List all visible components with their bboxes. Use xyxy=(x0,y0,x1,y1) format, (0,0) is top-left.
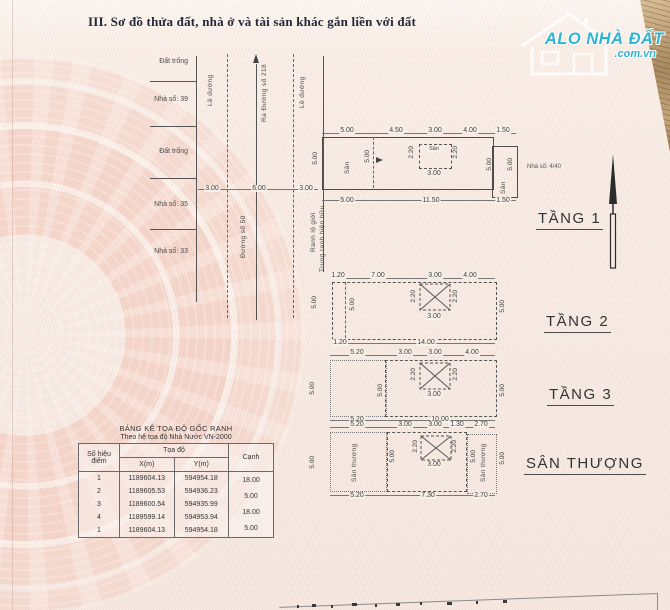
dim-label: 5.00 xyxy=(339,127,355,134)
dim-label: 2.20 xyxy=(452,368,459,381)
road-direction-arrow-icon xyxy=(253,54,259,63)
cutoff-text-fragment xyxy=(352,603,357,606)
boundary-tick xyxy=(150,229,196,230)
cutoff-text-fragment xyxy=(447,602,452,605)
house-number-label: Nhà số: 4/40 xyxy=(527,164,561,170)
coordinate-table: Số hiệu điểm Tọa độ Cạnh X(m) Y(m) 1 118… xyxy=(78,443,274,538)
dim-label: 5.00 xyxy=(339,197,355,204)
coord-y-cell: 594954.18 xyxy=(174,472,229,486)
brand-name: ALO NHÀ ĐẤT xyxy=(514,30,664,49)
dim-label: 5.00 xyxy=(309,456,316,469)
dim-label: 5.00 xyxy=(507,158,514,171)
entry-arrow-icon xyxy=(376,157,383,163)
edge-value: 18.00 xyxy=(229,477,273,484)
cutoff-text-fragment xyxy=(331,605,333,608)
dim-label: 5.00 xyxy=(377,384,384,397)
dim-label: 3.00 xyxy=(397,421,413,428)
dim-label: 5.00 xyxy=(309,382,316,395)
dim-label: 3.00 xyxy=(298,185,314,192)
dim-label: 3.00 xyxy=(426,170,442,177)
dim-label: 3.00 xyxy=(427,349,443,356)
dim-label: 5.20 xyxy=(349,421,365,428)
adjacent-lot-label: Nhà số: 35 xyxy=(100,201,188,208)
edge-value: 5.00 xyxy=(229,525,273,532)
dim-label: 5.00 xyxy=(470,450,477,463)
floor1-yard-divider xyxy=(373,137,374,188)
dim-label: 5.00 xyxy=(364,150,371,163)
dim-label: 3.00 xyxy=(397,349,413,356)
coordinate-table-block: BẢNG KÊ TỌA ĐỘ GỐC RANH Theo hệ tọa độ N… xyxy=(78,424,274,538)
col-header-x: X(m) xyxy=(120,458,175,472)
coord-x-cell: 1189604.13 xyxy=(120,472,175,486)
north-arrow-icon xyxy=(606,152,620,272)
dim-label: 1.20 xyxy=(332,339,348,346)
cutoff-text-fragment xyxy=(375,604,377,607)
curb-line-left xyxy=(227,54,228,318)
floor1-title: TẦNG 1 xyxy=(536,210,603,230)
dim-label: 5.00 xyxy=(389,450,396,463)
terrace-label-right: Sân thượng xyxy=(480,442,487,482)
coord-y-cell: 594953.94 xyxy=(174,511,229,524)
road-boundary-label: Ranh lộ giới xyxy=(310,198,317,252)
void-cross-icon xyxy=(419,283,451,311)
dim-label: 2.20 xyxy=(412,440,419,453)
point-id-cell: 1 xyxy=(79,472,120,486)
dim-label: 4.50 xyxy=(388,127,404,134)
cutoff-text-fragment xyxy=(476,601,478,604)
roof-terrace-left-outline xyxy=(330,432,387,492)
dim-label: 4.00 xyxy=(464,349,480,356)
dim-label: 3.00 xyxy=(426,391,442,398)
dim-label: 14.00 xyxy=(416,339,436,346)
adjacent-lot-label: Đất trống xyxy=(100,148,188,155)
dim-label: 2.20 xyxy=(452,146,459,159)
point-id-cell: 1 xyxy=(79,524,120,538)
road-centerline xyxy=(256,64,257,320)
dim-label: 11.50 xyxy=(422,197,441,204)
point-id-cell: 4 xyxy=(79,511,120,524)
edge-column: 18.00 5.00 18.00 5.00 xyxy=(229,472,274,538)
dim-label: 1.20 xyxy=(330,272,346,279)
dim-label: 3.00 xyxy=(427,421,443,428)
coord-x-cell: 1189599.14 xyxy=(120,511,175,524)
dim-label: 2.20 xyxy=(452,290,459,303)
adjacent-lot-label: Đất trống xyxy=(100,58,188,65)
dim-label: 1.50 xyxy=(495,197,511,204)
back-yard-label: Sân xyxy=(500,176,507,194)
adjacent-lot-label: Nhà số: 33 xyxy=(100,248,188,255)
cutoff-text-fragment xyxy=(312,604,316,607)
edge-value: 5.00 xyxy=(229,493,273,500)
dim-label: 2.20 xyxy=(410,290,417,303)
next-section-border xyxy=(279,593,658,608)
dim-label: 1.50 xyxy=(495,127,511,134)
dim-label: 2.70 xyxy=(473,421,489,428)
dim-label: 2.20 xyxy=(451,440,458,453)
boundary-tick xyxy=(150,178,196,179)
dim-label: 3.00 xyxy=(204,185,220,192)
col-header-point: Số hiệu điểm xyxy=(79,444,120,472)
void-cross-icon xyxy=(420,435,452,461)
street-name-label: Đường số 50 xyxy=(240,206,247,258)
front-yard-label: Sân xyxy=(344,148,351,174)
dim-label: 3.00 xyxy=(427,272,443,279)
cutoff-text-fragment xyxy=(297,605,299,608)
curb-line-right xyxy=(293,54,294,318)
dim-label: 5.00 xyxy=(499,452,506,465)
table-subtitle: Theo hệ tọa độ Nhà Nước VN-2000 xyxy=(78,434,274,441)
floor3-title: TẦNG 3 xyxy=(547,386,614,406)
dim-label: 5.00 xyxy=(312,152,319,165)
dim-label: 4.00 xyxy=(462,272,478,279)
point-id-cell: 2 xyxy=(79,485,120,498)
cutoff-text-fragment xyxy=(396,603,400,606)
table-title: BẢNG KÊ TỌA ĐỘ GỐC RANH xyxy=(78,424,274,433)
coord-x-cell: 1189604.13 xyxy=(120,524,175,538)
coord-x-cell: 1189600.54 xyxy=(120,498,175,511)
section-title: III. Sơ đồ thửa đất, nhà ở và tài sản kh… xyxy=(88,14,416,30)
boundary-tick xyxy=(150,81,196,82)
next-section-border xyxy=(657,593,658,610)
adjacent-lot-label: Nhà số: 39 xyxy=(100,96,188,103)
dim-label: 5.00 xyxy=(486,158,493,171)
certificate-page: III. Sơ đồ thửa đất, nhà ở và tài sản kh… xyxy=(0,0,670,610)
dim-label: 7.30 xyxy=(420,492,436,499)
cutoff-text-fragment xyxy=(420,602,422,605)
dim-line xyxy=(332,343,495,344)
brand-domain: .com.vn xyxy=(514,48,664,60)
dim-label: 5.00 xyxy=(349,298,356,311)
coord-y-cell: 594936.23 xyxy=(174,485,229,498)
existing-boundary-label: Trung ranh hiện hữu xyxy=(319,200,326,272)
dim-label: 3.00 xyxy=(427,127,443,134)
coord-y-cell: 594935.99 xyxy=(174,498,229,511)
dim-label: 3.00 xyxy=(426,313,442,320)
dim-label: 2.20 xyxy=(408,146,415,159)
col-header-coords: Tọa độ xyxy=(120,444,229,458)
left-boundary-line xyxy=(196,56,197,302)
cutoff-text-fragment xyxy=(503,600,507,603)
dim-label: 6.00 xyxy=(251,185,267,192)
col-header-edge: Cạnh xyxy=(229,444,274,472)
to-street-label: Ra Đường số 218 xyxy=(261,58,268,122)
dim-label: 5.00 xyxy=(499,300,506,313)
fold-line xyxy=(12,0,13,610)
coord-x-cell: 1189605.53 xyxy=(120,485,175,498)
dim-label: 2.20 xyxy=(410,368,417,381)
brand-watermark: ALO NHÀ ĐẤT .com.vn xyxy=(514,8,664,78)
dim-label: 2.70 xyxy=(473,492,489,499)
floor2-title: TẦNG 2 xyxy=(544,313,611,333)
skylight-label: Sân xyxy=(428,146,440,152)
curb-label-left: Lề đường xyxy=(207,70,214,106)
terrace-label-left: Sân thượng xyxy=(351,442,358,482)
table-row: 1 1189604.13 594954.18 18.00 5.00 18.00 … xyxy=(79,472,274,486)
dim-label: 1.30 xyxy=(449,421,465,428)
dim-label: 5.20 xyxy=(349,492,365,499)
curb-label-right: Lề đường xyxy=(299,72,306,108)
dim-label: 3.00 xyxy=(426,461,442,468)
dim-label: 5.00 xyxy=(499,384,506,397)
dim-label: 7.00 xyxy=(370,272,386,279)
dim-label: 4.00 xyxy=(462,127,478,134)
edge-value: 18.00 xyxy=(229,509,273,516)
coord-y-cell: 594954.18 xyxy=(174,524,229,538)
dim-label: 5.20 xyxy=(349,349,365,356)
point-id-cell: 3 xyxy=(79,498,120,511)
boundary-tick xyxy=(150,126,196,127)
roof-title: SÂN THƯỢNG xyxy=(524,455,646,475)
dim-label: 5.00 xyxy=(311,296,318,309)
void-cross-icon xyxy=(419,362,451,390)
col-header-y: Y(m) xyxy=(174,458,229,472)
floor2-setback-line xyxy=(345,282,346,338)
